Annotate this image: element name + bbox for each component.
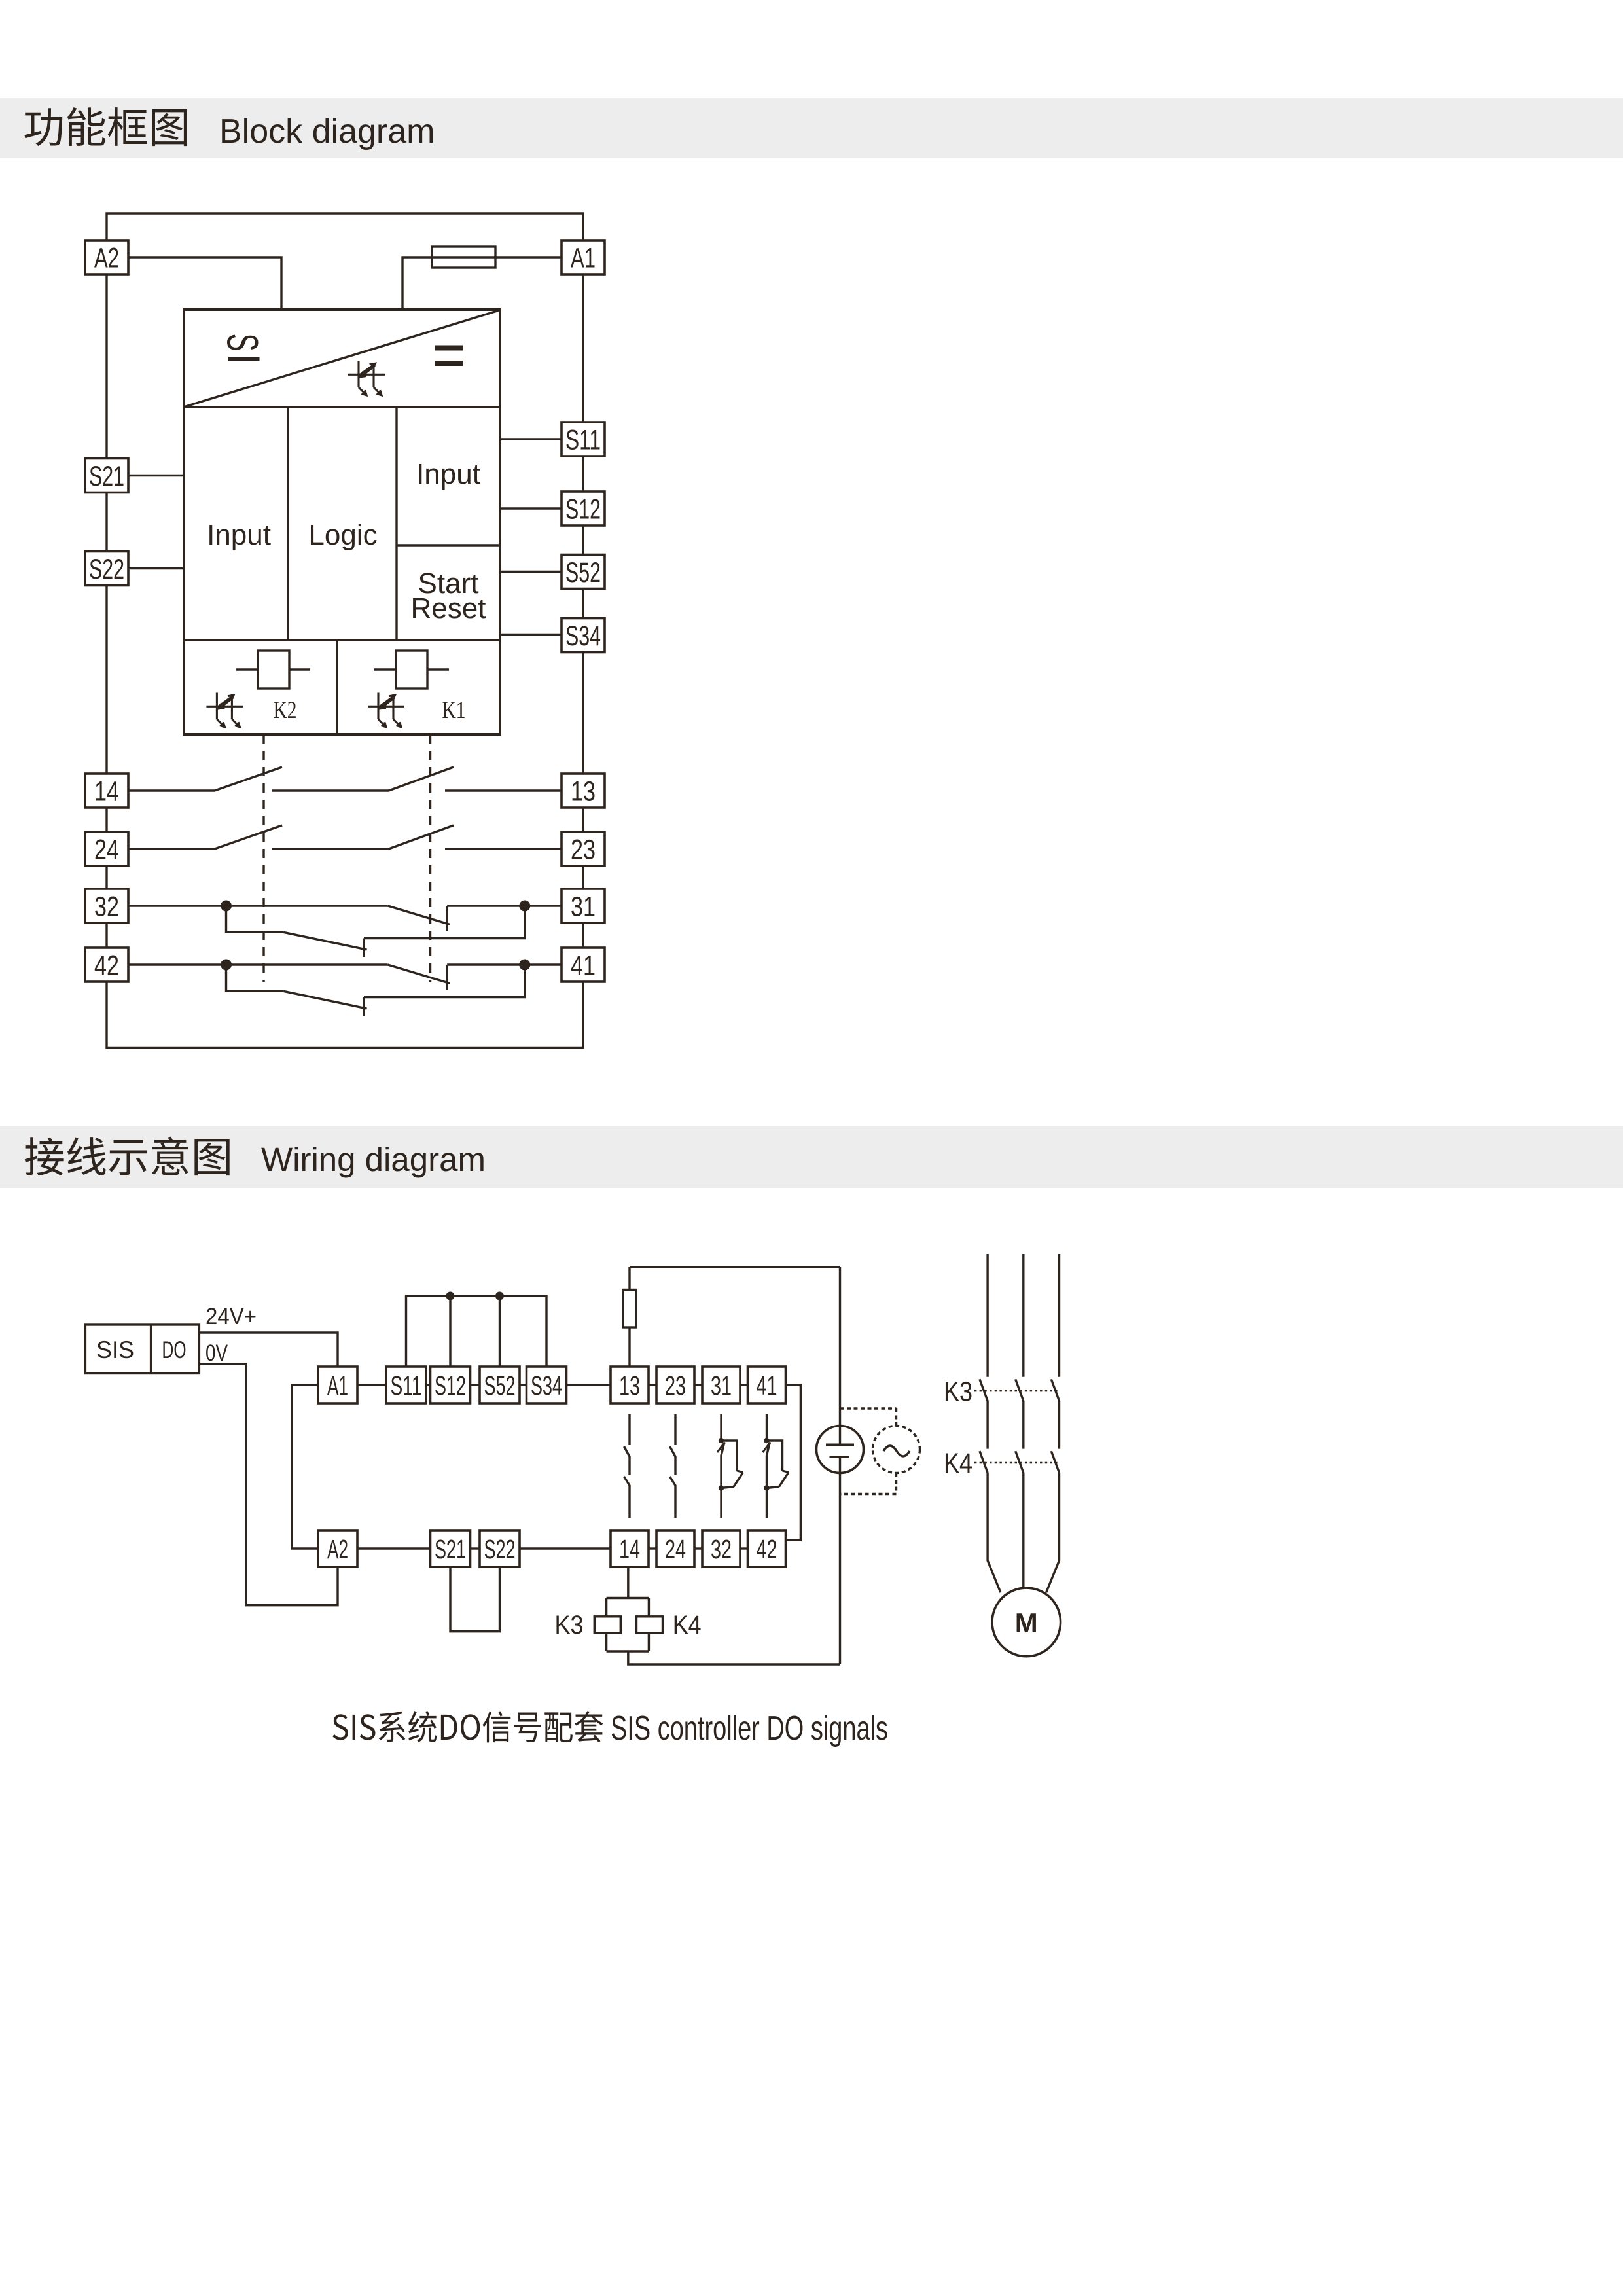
svg-text:31: 31 bbox=[571, 891, 596, 923]
svg-text:24V+: 24V+ bbox=[205, 1304, 257, 1329]
svg-text:K3: K3 bbox=[944, 1376, 972, 1407]
svg-text:K1: K1 bbox=[442, 697, 466, 724]
svg-text:S21: S21 bbox=[89, 461, 124, 492]
svg-text:SIS: SIS bbox=[96, 1336, 134, 1363]
svg-text:A2: A2 bbox=[327, 1534, 348, 1564]
svg-text:13: 13 bbox=[571, 776, 596, 808]
svg-text:S22: S22 bbox=[484, 1534, 516, 1564]
svg-text:23: 23 bbox=[571, 834, 596, 866]
svg-text:Logic: Logic bbox=[308, 519, 377, 551]
svg-text:A2: A2 bbox=[94, 243, 119, 274]
svg-text:23: 23 bbox=[665, 1371, 686, 1401]
svg-text:S12: S12 bbox=[435, 1371, 466, 1401]
svg-text:13: 13 bbox=[619, 1371, 640, 1401]
svg-text:SIS controller DO signals: SIS controller DO signals bbox=[611, 1710, 888, 1748]
svg-text:S52: S52 bbox=[484, 1371, 516, 1401]
svg-text:S34: S34 bbox=[531, 1371, 562, 1401]
svg-text:A1: A1 bbox=[571, 243, 596, 274]
svg-text:41: 41 bbox=[571, 950, 596, 982]
svg-text:14: 14 bbox=[94, 776, 119, 808]
svg-text:41: 41 bbox=[757, 1371, 777, 1401]
svg-text:Input: Input bbox=[207, 519, 271, 551]
svg-text:K2: K2 bbox=[274, 697, 297, 724]
svg-text:24: 24 bbox=[94, 834, 119, 866]
svg-text:K4: K4 bbox=[944, 1448, 972, 1479]
svg-text:A1: A1 bbox=[327, 1371, 348, 1401]
svg-text:Block diagram: Block diagram bbox=[219, 113, 435, 151]
svg-text:42: 42 bbox=[757, 1534, 777, 1564]
svg-text:Reset: Reset bbox=[411, 592, 486, 624]
svg-text:DO: DO bbox=[162, 1336, 187, 1363]
svg-text:31: 31 bbox=[711, 1371, 732, 1401]
svg-text:S22: S22 bbox=[89, 554, 124, 585]
svg-text:S11: S11 bbox=[565, 425, 601, 456]
svg-text:S11: S11 bbox=[391, 1371, 422, 1401]
svg-text:S52: S52 bbox=[565, 557, 601, 588]
svg-text:K3: K3 bbox=[555, 1611, 584, 1640]
svg-text:0V: 0V bbox=[205, 1340, 228, 1366]
svg-text:32: 32 bbox=[94, 891, 119, 923]
svg-text:S21: S21 bbox=[435, 1534, 466, 1564]
svg-text:S: S bbox=[218, 334, 267, 351]
svg-text:M: M bbox=[1015, 1607, 1038, 1638]
svg-text:Input: Input bbox=[416, 458, 480, 490]
svg-text:Wiring diagram: Wiring diagram bbox=[261, 1141, 486, 1178]
svg-text:S34: S34 bbox=[565, 620, 601, 652]
svg-text:K4: K4 bbox=[673, 1611, 702, 1640]
svg-text:14: 14 bbox=[619, 1534, 640, 1564]
svg-text:42: 42 bbox=[94, 950, 119, 982]
svg-text:32: 32 bbox=[711, 1534, 732, 1564]
svg-text:24: 24 bbox=[665, 1534, 686, 1564]
svg-text:S12: S12 bbox=[565, 494, 601, 526]
